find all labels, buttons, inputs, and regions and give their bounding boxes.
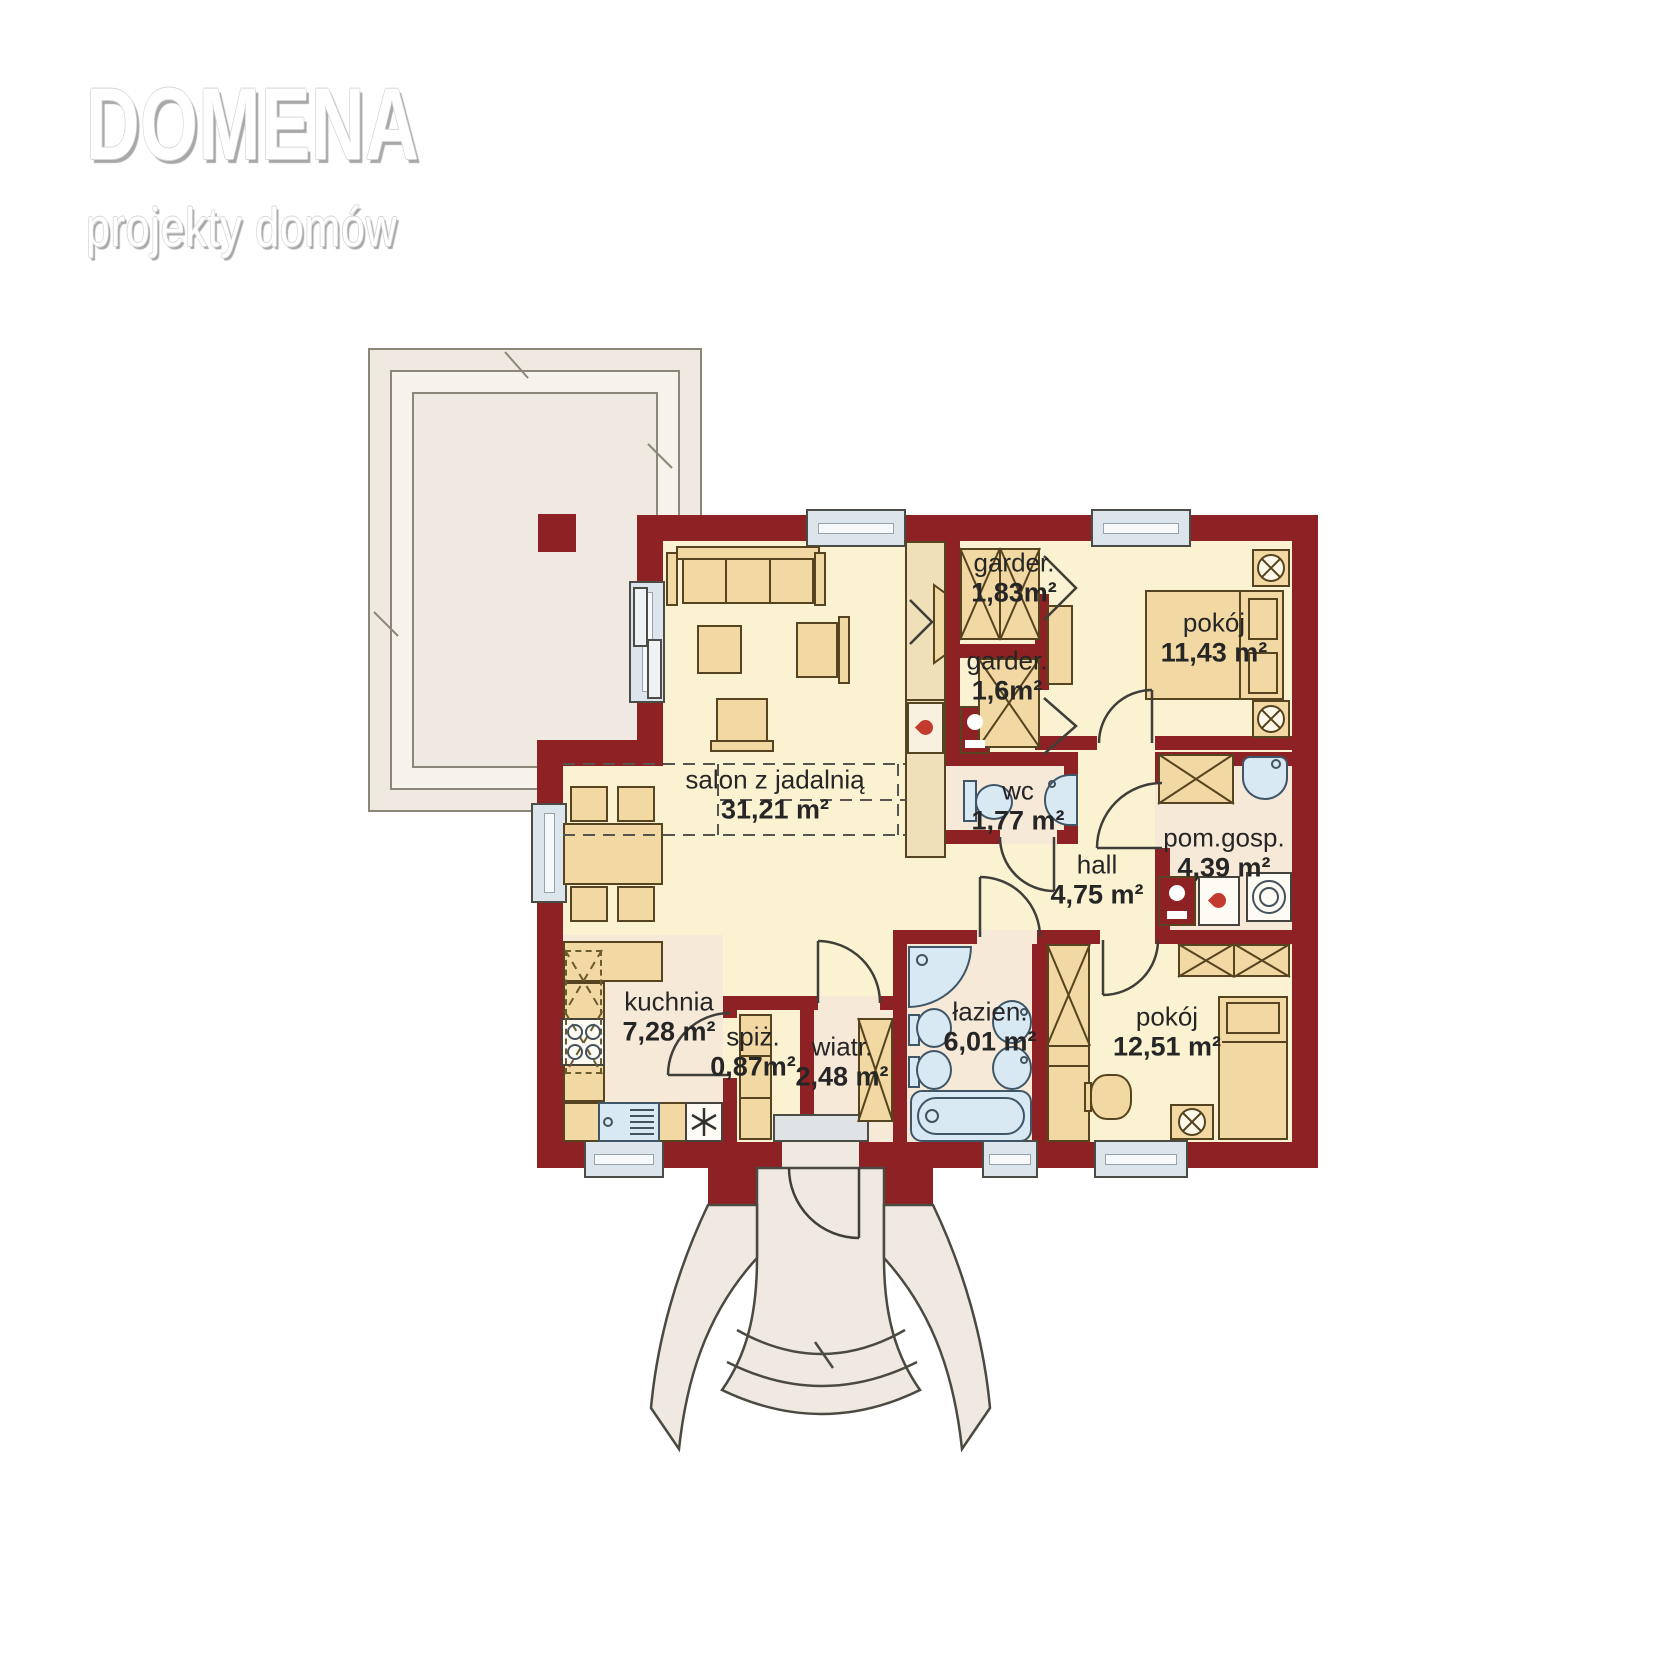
porch-step-line (727, 1362, 917, 1386)
wall-utility-bottom (1155, 930, 1292, 944)
utility-sink (1242, 756, 1288, 800)
armchair-right (796, 622, 838, 678)
room-label-wiatr: wiatr. 2,48 m² (795, 1032, 888, 1091)
wall-pokoj2-top (1047, 930, 1100, 944)
window-bath-bottom (982, 1140, 1038, 1178)
bathtub-inner (917, 1097, 1025, 1135)
brand-subtitle: projekty domów (86, 195, 437, 259)
room-label-wc: wc 1,77 m² (971, 776, 1064, 835)
brand-title: DOMENA (86, 66, 419, 183)
dining-chair (570, 786, 608, 822)
utility-flue (1158, 876, 1196, 926)
media-wall-strip (905, 541, 946, 858)
wall-kitchen-pantry-bottom (723, 1078, 737, 1142)
sofa (682, 558, 814, 604)
room-label-pokoj1: pokój 11,43 m² (1161, 608, 1268, 667)
brand-logo: DOMENA projekty domów (86, 66, 536, 259)
room-label-salon: salon z jadalnią 31,21 m² (685, 765, 864, 824)
front-door-sill (773, 1114, 869, 1142)
room-label-garder2: garder. 1,6m² (967, 646, 1048, 705)
fireplace-flame-icon (915, 717, 936, 738)
porch-jamb-left (708, 1168, 757, 1205)
wall-bath-top-left (893, 930, 977, 944)
coffee-table (697, 625, 742, 674)
fireplace (907, 702, 944, 754)
sofa-arm-left (666, 552, 678, 606)
dining-table (563, 823, 663, 885)
dining-chair (617, 786, 655, 822)
wardrobe-pokoj2 (1178, 944, 1290, 977)
desk-chair-back (1084, 1082, 1092, 1112)
fridge (685, 1102, 723, 1142)
kitchen-sink (598, 1102, 660, 1142)
window-dining-left (531, 803, 567, 903)
room-label-pokoj2: pokój 12,51 m² (1113, 1002, 1221, 1061)
dining-chair (617, 886, 655, 922)
room-label-spiz: spiż. 0,87m² (710, 1022, 796, 1081)
cabinet-strip-pokoj2 (1047, 944, 1090, 1142)
terrace-inner (412, 392, 658, 768)
nightstand (1252, 700, 1290, 738)
porch-wing-right (884, 1205, 990, 1449)
wall-vestibule-bath (893, 944, 907, 1142)
pillow (1226, 1002, 1280, 1034)
window-pokoj1-top (1091, 509, 1191, 547)
wall-pokoj1-bottom-right (1155, 736, 1292, 750)
terrace-pillar (538, 514, 576, 552)
nightstand (1252, 549, 1290, 587)
armchair-bottom-back (710, 740, 774, 752)
room-label-garder1: garder. 1,83m² (971, 548, 1057, 607)
porch-step-line (737, 1330, 905, 1354)
window-pokoj2-bottom (1094, 1140, 1188, 1178)
room-label-lazienka: łazien. 6,01 m² (943, 997, 1036, 1056)
entrance-porch (651, 1168, 990, 1449)
boiler-flame-icon (1208, 890, 1229, 911)
room-label-pomgosp: pom.gosp. 4,39 m² (1163, 823, 1284, 882)
wall-vestibule-top-left (800, 996, 818, 1010)
wall-pantry-top (723, 996, 800, 1010)
front-door-opening (782, 1142, 859, 1168)
cabinet-pokoj1-wall (1047, 605, 1073, 685)
sofa-arm-right (814, 552, 826, 606)
dining-chair (570, 886, 608, 922)
room-label-kuchnia: kuchnia 7,28 m² (622, 987, 715, 1046)
nightstand (1170, 1104, 1214, 1140)
desk-chair (1090, 1074, 1132, 1120)
porch-jamb-right (884, 1168, 933, 1205)
wardrobe-utility (1158, 754, 1234, 804)
balcony-door (629, 581, 665, 703)
boiler (1198, 876, 1240, 926)
porch-step-tick (815, 1342, 833, 1368)
window-kitchen-bottom (584, 1140, 664, 1178)
armchair-bottom (716, 698, 768, 742)
wall-kitchen-pantry-top (723, 1010, 737, 1018)
floor-plan-page: DOMENA projekty domów (0, 0, 1680, 1680)
room-label-hall: hall 4,75 m² (1050, 850, 1143, 909)
wall-vestibule-top-right (880, 996, 907, 1010)
wall-wc-top (946, 752, 1078, 766)
window-salon-top (806, 509, 906, 547)
door-front (789, 1168, 859, 1238)
armchair-right-back (838, 616, 850, 684)
porch-wing-left (651, 1205, 757, 1449)
wall-pokoj1-bottom-left (1035, 736, 1097, 750)
wall-bath-top-right (1037, 930, 1047, 944)
kitchen-upper-cabinets (565, 950, 602, 1074)
